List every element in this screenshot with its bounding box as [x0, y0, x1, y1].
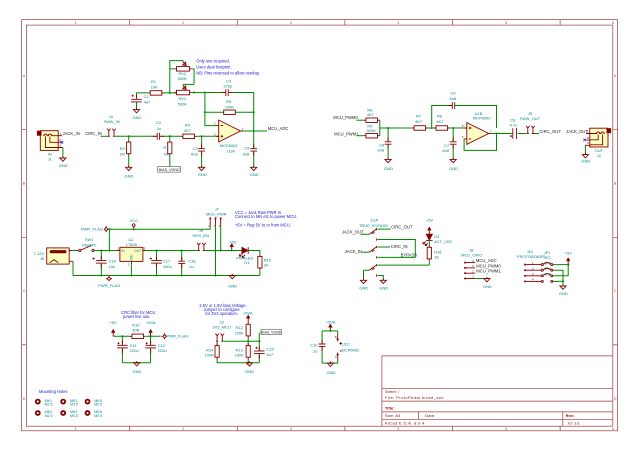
- svg-text:R2: R2: [120, 146, 126, 151]
- svg-text:RV1: RV1: [178, 96, 186, 101]
- svg-text:4K7: 4K7: [367, 112, 375, 117]
- svg-text:C3: C3: [193, 146, 199, 151]
- svg-text:ON/OFF: ON/OFF: [82, 242, 98, 247]
- svg-text:100K: 100K: [234, 331, 244, 336]
- svg-text:5: 5: [505, 21, 507, 25]
- svg-text:R6: R6: [437, 113, 443, 118]
- svg-text:C4: C4: [226, 78, 232, 83]
- svg-text:S: S: [587, 141, 589, 145]
- svg-text:RV2: RV2: [178, 71, 186, 76]
- svg-text:GND: GND: [125, 173, 134, 178]
- svg-text:Rev:: Rev:: [566, 413, 575, 418]
- svg-text:PWR_FLAG: PWR_FLAG: [167, 334, 189, 339]
- svg-text:CIRC_OUT: CIRC_OUT: [539, 129, 561, 134]
- svg-text:JP1: JP1: [544, 251, 550, 255]
- svg-text:C10: C10: [310, 343, 318, 348]
- svg-text:GND: GND: [228, 284, 237, 289]
- svg-text:MCU_ADC: MCU_ADC: [476, 258, 497, 263]
- svg-text:MCU_PWR: MCU_PWR: [206, 212, 227, 217]
- svg-text:GND: GND: [449, 166, 458, 171]
- svg-text:1M: 1M: [119, 152, 125, 157]
- svg-text:6n8: 6n8: [243, 151, 250, 156]
- svg-text:GND: GND: [132, 115, 141, 120]
- svg-text:R14: R14: [206, 347, 214, 352]
- svg-text:D1: D1: [244, 260, 250, 265]
- svg-text:30R: 30R: [132, 327, 139, 332]
- svg-text:3V3_MCU: 3V3_MCU: [212, 325, 231, 330]
- svg-text:Uses dual footprint.: Uses dual footprint.: [196, 64, 231, 69]
- svg-text:PWR_FLAG: PWR_FLAG: [98, 283, 120, 288]
- svg-text:.1u: .1u: [312, 348, 318, 353]
- svg-text:MCP6002: MCP6002: [473, 115, 492, 120]
- svg-text:M3.5: M3.5: [70, 414, 78, 418]
- svg-text:3: 3: [290, 21, 292, 25]
- svg-text:U1C: U1C: [342, 342, 350, 347]
- svg-text:+5V: +5V: [110, 320, 118, 325]
- svg-text:4.7u: 4.7u: [510, 122, 518, 127]
- svg-text:OUT: OUT: [134, 249, 142, 253]
- svg-text:OUT: OUT: [595, 148, 604, 153]
- svg-text:4K7: 4K7: [415, 119, 423, 124]
- svg-text:R3: R3: [163, 145, 169, 150]
- svg-text:MCU_PWM0: MCU_PWM0: [476, 263, 501, 268]
- svg-text:R12: R12: [236, 325, 244, 330]
- svg-text:MCU_PWM1: MCU_PWM1: [476, 269, 501, 274]
- svg-text:MCP6002: MCP6002: [342, 348, 361, 353]
- svg-text:MCU_GPIO: MCU_GPIO: [461, 252, 482, 257]
- svg-text:Id: 1/1: Id: 1/1: [568, 420, 580, 425]
- svg-text:100K: 100K: [225, 104, 235, 109]
- svg-text:M2.5: M2.5: [94, 403, 102, 407]
- svg-text:CIRC_OUT: CIRC_OUT: [391, 224, 413, 229]
- svg-text:1: 1: [75, 427, 77, 431]
- svg-text:Mounting Holes: Mounting Holes: [39, 389, 67, 394]
- svg-text:GND: GND: [384, 166, 393, 171]
- svg-text:CIRC_IN: CIRC_IN: [85, 131, 102, 136]
- svg-text:GND: GND: [133, 369, 142, 374]
- svg-text:C9: C9: [450, 91, 456, 96]
- svg-text:6: 6: [612, 427, 614, 431]
- svg-text:220u: 220u: [130, 348, 139, 353]
- svg-text:5: 5: [505, 427, 507, 431]
- svg-text:JACK_OUT: JACK_OUT: [566, 129, 588, 134]
- svg-text:4u7: 4u7: [144, 99, 151, 104]
- svg-text:1: 1: [75, 21, 77, 25]
- svg-text:VCC: VCC: [130, 218, 139, 223]
- svg-text:GND: GND: [483, 284, 492, 289]
- svg-text:+5V = Reg 5V to or from MCU.: +5V = Reg 5V to or from MCU.: [235, 223, 291, 228]
- svg-text:2: 2: [182, 21, 184, 25]
- svg-text:PWR_FLAG: PWR_FLAG: [81, 227, 103, 232]
- svg-text:R13: R13: [236, 347, 244, 352]
- svg-text:Title:: Title:: [385, 405, 395, 410]
- svg-text:M2.5: M2.5: [45, 414, 53, 418]
- svg-text:R5: R5: [226, 99, 232, 104]
- svg-text:IN: IN: [48, 151, 52, 156]
- svg-text:+5V: +5V: [426, 217, 434, 222]
- svg-text:1K: 1K: [434, 255, 439, 260]
- svg-text:500K: 500K: [178, 76, 188, 81]
- svg-text:MCU_PWM1: MCU_PWM1: [334, 132, 359, 137]
- svg-text:GND: GND: [379, 286, 388, 291]
- svg-text:C2: C2: [156, 120, 162, 125]
- svg-text:+5V: +5V: [565, 250, 573, 255]
- svg-text:6n8: 6n8: [191, 152, 198, 157]
- svg-text:R4: R4: [185, 123, 191, 128]
- svg-text:BYPASS: BYPASS: [401, 253, 418, 258]
- svg-text:100K: 100K: [205, 353, 215, 358]
- svg-text:ACT_LED: ACT_LED: [434, 239, 452, 244]
- svg-text:TRUE_BYPASS: TRUE_BYPASS: [359, 223, 388, 228]
- svg-text:KiCad E.D.A. 8.0.4: KiCad E.D.A. 8.0.4: [385, 420, 425, 425]
- svg-text:.1u: .1u: [156, 126, 162, 131]
- svg-text:D: D: [23, 397, 26, 401]
- svg-text:for 3V3 operation.: for 3V3 operation.: [205, 311, 238, 316]
- svg-text:JACK_IN: JACK_IN: [345, 249, 362, 254]
- svg-text:100u: 100u: [163, 264, 172, 269]
- svg-text:GND: GND: [129, 254, 133, 262]
- svg-text:GND: GND: [198, 172, 207, 177]
- svg-text:100K: 100K: [234, 353, 244, 358]
- svg-text:RAW_IN: RAW_IN: [104, 119, 120, 124]
- svg-text:BIAS_VGND: BIAS_VGND: [261, 330, 282, 334]
- svg-text:MCU_PWM0: MCU_PWM0: [333, 115, 358, 120]
- svg-text:6n8: 6n8: [442, 148, 449, 153]
- svg-text:M3.5: M3.5: [70, 403, 78, 407]
- svg-text:4: 4: [397, 21, 399, 25]
- svg-text:GND: GND: [250, 172, 259, 177]
- svg-text:Size: A4: Size: A4: [385, 413, 401, 418]
- svg-text:300K: 300K: [366, 128, 376, 133]
- svg-text:File: ProtoPedal.kicad_sch: File: ProtoPedal.kicad_sch: [385, 395, 444, 400]
- svg-text:6: 6: [612, 21, 614, 25]
- svg-text:6n8: 6n8: [450, 96, 457, 101]
- svg-text:4K7: 4K7: [184, 128, 192, 133]
- svg-text:M2.5: M2.5: [94, 414, 102, 418]
- svg-text:R7: R7: [416, 113, 422, 118]
- svg-text:BIAS_VGND: BIAS_VGND: [159, 168, 180, 172]
- svg-text:JACK_IN: JACK_IN: [63, 131, 80, 136]
- svg-text:C15: C15: [266, 347, 274, 352]
- svg-text:C5: C5: [244, 146, 250, 151]
- svg-text:RAW_OUT: RAW_OUT: [520, 116, 540, 121]
- svg-text:L7805: L7805: [126, 242, 138, 247]
- svg-text:IN: IN: [121, 249, 125, 253]
- svg-text:GND: GND: [581, 158, 590, 163]
- svg-text:6n8: 6n8: [378, 147, 385, 152]
- svg-text:CIRC_IN: CIRC_IN: [391, 244, 408, 249]
- svg-text:U1A: U1A: [227, 149, 235, 154]
- svg-text:+5VA: +5VA: [146, 320, 156, 325]
- svg-text:GND: GND: [59, 163, 68, 168]
- svg-text:2: 2: [182, 427, 184, 431]
- svg-text:10u: 10u: [109, 264, 116, 269]
- svg-text:220u: 220u: [158, 348, 167, 353]
- svg-text:+5V: +5V: [229, 239, 237, 244]
- svg-text:Sheet: /: Sheet: /: [385, 389, 400, 394]
- svg-text:4: 4: [397, 427, 399, 431]
- svg-text:4u7: 4u7: [266, 352, 273, 357]
- svg-text:C: C: [23, 289, 26, 293]
- svg-text:MCP6002: MCP6002: [220, 143, 239, 148]
- svg-text:3: 3: [290, 427, 292, 431]
- svg-text:1M: 1M: [163, 152, 169, 157]
- svg-text:JP2: JP2: [545, 256, 551, 260]
- svg-text:+5VA: +5VA: [326, 320, 336, 325]
- svg-text:Connect to MN etc to power MCU: Connect to MN etc to power MCU.: [235, 214, 297, 219]
- svg-text:M2.5: M2.5: [45, 403, 53, 407]
- svg-text:Date:: Date:: [425, 413, 435, 418]
- svg-text:power line use.: power line use.: [123, 314, 151, 319]
- svg-text:500K: 500K: [178, 101, 188, 106]
- svg-text:MCU_ADC: MCU_ADC: [268, 126, 289, 131]
- svg-text:1K: 1K: [264, 263, 269, 268]
- svg-text:PROTOBOARD: PROTOBOARD: [517, 254, 545, 259]
- svg-text:NB: Pins reversed to allow ove: NB: Pins reversed to allow overlap.: [196, 70, 260, 75]
- svg-text:REG_EN: REG_EN: [192, 233, 209, 238]
- svg-text:S: S: [59, 144, 61, 148]
- svg-text:GND: GND: [326, 370, 335, 375]
- svg-text:GND: GND: [359, 286, 368, 291]
- svg-text:+5VA: +5VA: [243, 311, 253, 316]
- svg-text:C: C: [614, 289, 617, 293]
- svg-text:D: D: [614, 397, 617, 401]
- svg-text:Only one required.: Only one required.: [196, 58, 230, 63]
- svg-text:GND: GND: [245, 369, 254, 374]
- svg-text:10K: 10K: [151, 84, 158, 89]
- svg-text:4K7: 4K7: [436, 119, 444, 124]
- svg-text:270p: 270p: [223, 84, 233, 89]
- svg-text:GND: GND: [559, 291, 568, 296]
- svg-text:.1u: .1u: [188, 264, 194, 269]
